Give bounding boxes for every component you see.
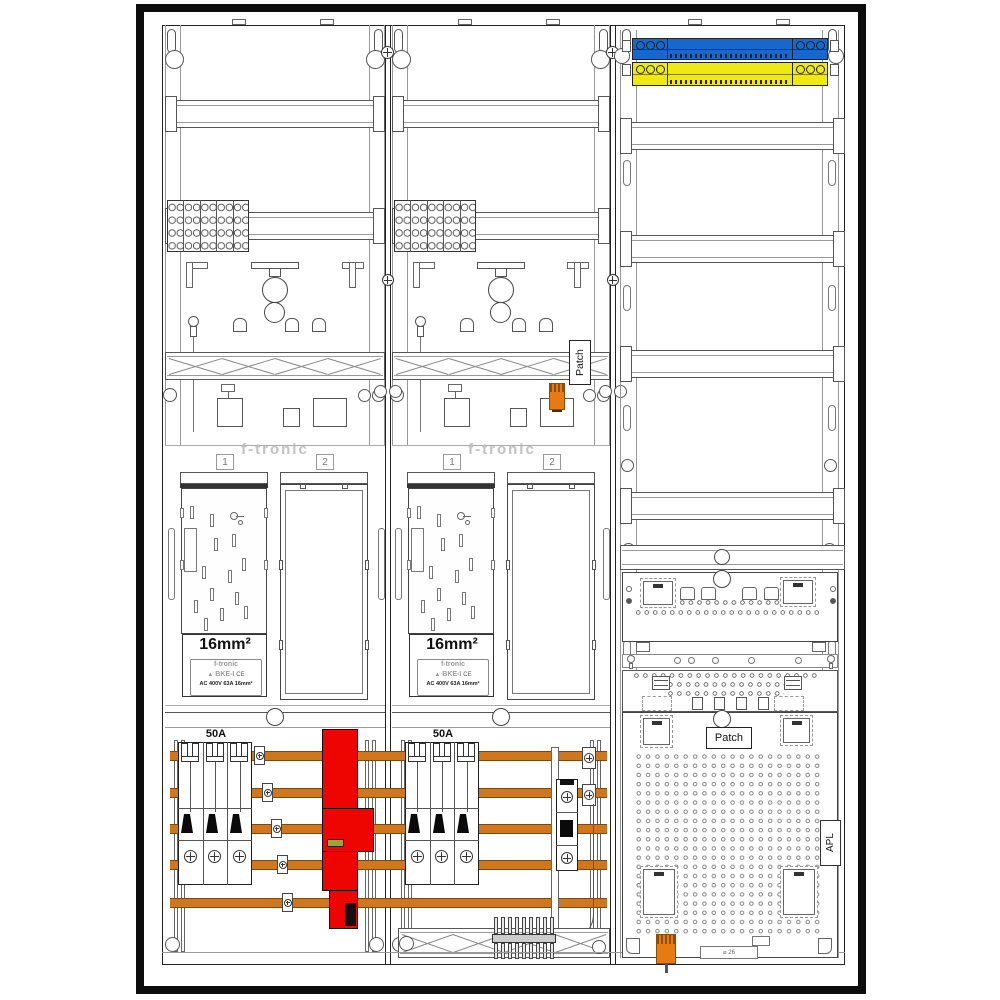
drawing-shape <box>636 41 645 50</box>
perforation <box>395 201 475 251</box>
drawing-shape <box>459 534 463 547</box>
terminal <box>543 917 547 934</box>
drawing-shape <box>656 41 665 50</box>
drawing-shape <box>642 696 672 711</box>
drawing-shape <box>236 516 244 517</box>
drawing-shape <box>512 490 590 694</box>
drawing-shape <box>227 742 228 885</box>
drawing-shape <box>599 385 612 398</box>
drawing-shape <box>373 96 385 132</box>
drawing-shape <box>816 65 825 74</box>
drawing-shape <box>283 408 300 427</box>
terminal <box>515 943 519 959</box>
drawing-shape <box>238 520 243 525</box>
drawing-shape <box>506 640 510 650</box>
meter1-bke-plate: f-tronic ▲ BKE-I CE AC 400V 63A 16mm² <box>190 659 262 696</box>
drawing-shape <box>395 528 402 600</box>
breaker-handle <box>433 814 445 833</box>
drawing-shape <box>612 276 613 284</box>
drawing-shape <box>665 964 668 973</box>
drawing-shape <box>592 560 596 570</box>
drawing-shape <box>369 937 384 952</box>
terminal <box>494 943 498 959</box>
breaker-handle <box>457 814 469 833</box>
drawing-shape <box>165 50 184 69</box>
drawing-shape <box>216 200 217 252</box>
drawing-shape <box>443 200 444 252</box>
drawing-shape <box>652 721 662 725</box>
drawing-shape <box>444 398 470 427</box>
drawing-shape <box>654 685 668 686</box>
drawing-shape <box>264 302 285 323</box>
drawing-shape <box>816 41 825 50</box>
drawing-shape <box>221 384 235 392</box>
wire-loop <box>566 804 594 942</box>
drawing-shape <box>833 231 845 267</box>
terminal <box>543 943 547 959</box>
terminal-strip-rail <box>492 934 556 943</box>
drawing-shape <box>448 384 462 392</box>
meter1-slot1-label: 1 <box>216 454 234 470</box>
drawing-shape <box>183 200 184 252</box>
busbar <box>170 898 607 908</box>
cable-entry-icon <box>233 318 247 332</box>
drawing-shape <box>242 558 246 571</box>
drawing-shape <box>830 598 836 604</box>
drawing-shape <box>828 405 836 431</box>
drawing-shape <box>392 705 610 706</box>
drawing-shape <box>267 791 268 795</box>
breaker-handle <box>408 814 420 833</box>
drawing-shape <box>714 549 730 565</box>
drawing-shape <box>623 160 631 186</box>
drawing-shape <box>387 276 388 284</box>
drawing-shape <box>165 937 180 952</box>
drawing-shape <box>692 697 703 710</box>
drawing-shape <box>627 655 635 663</box>
drawing-shape <box>287 901 288 905</box>
perforation <box>634 609 822 616</box>
drawing-shape <box>217 398 243 427</box>
drawing-shape <box>560 779 574 785</box>
drawing-shape <box>430 742 431 885</box>
drawing-shape <box>190 762 191 812</box>
drawing-shape <box>210 588 214 601</box>
drawing-shape <box>469 558 473 571</box>
drawing-shape <box>455 570 459 583</box>
drawing-shape <box>774 696 804 711</box>
drawing-shape <box>471 606 475 619</box>
drawing-shape <box>442 762 443 812</box>
drawing-shape <box>441 852 442 861</box>
drawing-shape <box>748 657 755 664</box>
drawing-shape <box>163 388 177 402</box>
meter1-slot2-label: 2 <box>316 454 334 470</box>
drawing-shape <box>454 742 455 885</box>
drawing-shape <box>264 508 268 518</box>
drawing-shape <box>264 560 268 570</box>
cabinet-drawing <box>0 0 1000 1000</box>
drawing-shape <box>266 708 284 726</box>
terminal <box>522 943 526 959</box>
drawing-shape <box>190 852 191 861</box>
perforation <box>678 599 782 606</box>
drawing-shape <box>460 200 461 252</box>
drawing-shape <box>282 863 283 867</box>
drawing-shape <box>636 642 650 652</box>
drawing-shape <box>828 160 836 186</box>
drawing-shape <box>210 514 214 527</box>
drawing-shape <box>178 840 252 841</box>
drawing-shape <box>795 657 802 664</box>
meter2-bke-plate: f-tronic ▲ BKE-I CE AC 400V 63A 16mm² <box>417 659 489 696</box>
drawing-shape <box>204 618 208 631</box>
drawing-shape <box>313 398 347 427</box>
rj45-module-ridges <box>550 384 564 392</box>
drawing-shape <box>374 385 387 398</box>
drawing-shape <box>280 472 368 484</box>
cable-entry-icon <box>285 318 299 332</box>
drawing-shape <box>180 508 184 518</box>
top-tab <box>688 19 702 25</box>
drawing-shape <box>620 118 632 154</box>
sls-main-switch-red <box>322 729 358 810</box>
drawing-shape <box>373 208 385 244</box>
drawing-shape <box>653 584 663 588</box>
bke-plate-specs: AC 400V 63A 16mm² <box>418 680 488 689</box>
drawing-shape <box>833 118 845 154</box>
drawing-shape <box>622 40 631 52</box>
drawing-shape <box>202 566 206 579</box>
drawing-shape <box>279 640 283 650</box>
drawing-shape <box>829 663 833 669</box>
drawing-shape <box>622 514 843 515</box>
drawing-shape <box>492 708 510 726</box>
terminal <box>529 943 533 959</box>
drawing-shape <box>417 506 421 519</box>
top-tab <box>232 19 246 25</box>
drawing-shape <box>463 516 471 517</box>
drawing-shape <box>407 472 495 484</box>
drawing-shape <box>190 326 197 337</box>
drawing-shape <box>589 755 590 761</box>
drawing-shape <box>490 302 511 323</box>
drawing-shape <box>411 528 424 572</box>
drawing-shape <box>417 326 424 337</box>
terminal <box>522 917 526 934</box>
drawing-shape <box>466 852 467 861</box>
sls-main-switch-red <box>322 851 358 891</box>
drawing-shape <box>399 936 414 951</box>
drawing-shape <box>365 560 369 570</box>
terminal <box>550 917 554 934</box>
drawing-shape <box>670 54 790 58</box>
drawing-shape <box>407 560 411 570</box>
drawing-shape <box>828 285 836 311</box>
drawing-shape <box>620 545 845 570</box>
drawing-shape <box>167 356 383 357</box>
drawing-shape <box>622 564 843 565</box>
drawing-shape <box>407 508 411 518</box>
drawing-shape <box>488 277 514 303</box>
drawing-shape <box>506 560 510 570</box>
drawing-shape <box>552 410 562 412</box>
drawing-shape <box>405 808 479 809</box>
drawing-shape <box>830 64 839 76</box>
drawing-shape <box>233 200 234 252</box>
drawing-shape <box>467 762 468 812</box>
drawing-shape <box>622 64 631 76</box>
gland-size-label: ⌀ 26 <box>702 947 756 958</box>
drawing-shape <box>793 583 803 587</box>
terminal <box>501 943 505 959</box>
drawing-shape <box>806 65 815 74</box>
drawing-shape <box>657 935 675 944</box>
drawing-shape <box>394 105 608 106</box>
drawing-shape <box>387 48 388 57</box>
drawing-shape <box>824 459 837 472</box>
drawing-shape <box>583 389 596 402</box>
drawing-shape <box>626 938 640 954</box>
drawing-shape <box>622 550 843 551</box>
cable-entry-icon <box>460 318 474 332</box>
drawing-shape <box>262 277 288 303</box>
drawing-shape <box>465 520 470 525</box>
drawing-shape <box>168 528 175 600</box>
drawing-shape <box>228 570 232 583</box>
drawing-shape <box>447 608 451 621</box>
drawing-shape <box>165 705 385 706</box>
drawing-shape <box>495 268 507 277</box>
drawing-shape <box>392 96 404 132</box>
drawing-shape <box>621 459 634 472</box>
drawing-shape <box>796 65 805 74</box>
cable-entry-icon <box>312 318 326 332</box>
meter1-breaker-rating: 50A <box>190 727 242 740</box>
terminal <box>508 943 512 959</box>
drawing-shape <box>830 586 836 592</box>
bke-plate-brand: f-tronic <box>191 660 261 670</box>
drawing-shape <box>437 588 441 601</box>
drawing-shape <box>507 472 595 484</box>
drawing-shape <box>646 41 655 50</box>
drawing-shape <box>427 200 428 252</box>
drawing-shape <box>417 762 418 812</box>
drawing-shape <box>623 405 631 431</box>
drawing-shape <box>186 262 193 288</box>
drawing-shape <box>622 355 843 356</box>
perforation <box>666 690 784 697</box>
drawing-shape <box>792 721 802 725</box>
drawing-shape <box>203 742 204 885</box>
drawing-shape <box>812 642 826 652</box>
drawing-shape <box>190 506 194 519</box>
drawing-shape <box>567 793 568 801</box>
terminal <box>494 917 498 934</box>
drawing-shape <box>636 65 645 74</box>
drawing-shape <box>220 608 224 621</box>
drawing-shape <box>276 827 277 831</box>
hinge-icon <box>713 570 731 588</box>
top-tab <box>458 19 472 25</box>
switch-indicator-led <box>327 839 344 847</box>
switch-window <box>345 903 356 926</box>
bke-plate-brand: f-tronic <box>418 660 488 670</box>
drawing-shape <box>365 640 369 650</box>
drawing-shape <box>462 592 466 605</box>
drawing-shape <box>626 598 632 604</box>
drawing-shape <box>629 663 633 669</box>
drawing-shape <box>784 676 802 690</box>
drawing-shape <box>622 654 838 668</box>
drawing-shape <box>622 127 843 128</box>
drawing-shape <box>622 144 843 145</box>
field-divider <box>610 25 612 965</box>
drawing-shape <box>654 680 668 681</box>
drawing-shape <box>180 560 184 570</box>
drawing-shape <box>405 840 479 841</box>
drawing-shape <box>598 96 610 132</box>
drawing-shape <box>589 792 590 798</box>
drawing-shape <box>279 560 283 570</box>
drawing-shape <box>269 268 281 277</box>
drawing-shape <box>200 200 201 252</box>
drawing-shape <box>796 41 805 50</box>
drawing-shape <box>688 657 695 664</box>
drawing-shape <box>491 560 495 570</box>
drawing-shape <box>620 346 632 382</box>
meter2-breaker-rating: 50A <box>417 727 469 740</box>
perforation <box>666 681 784 688</box>
cable-entry-icon <box>539 318 553 332</box>
top-tab <box>320 19 334 25</box>
breaker-handle <box>181 814 193 833</box>
top-tab <box>776 19 790 25</box>
drawing-shape <box>392 50 411 69</box>
terminal <box>536 943 540 959</box>
drawing-shape <box>652 676 670 690</box>
apl-label: APL <box>820 820 841 866</box>
drawing-shape <box>349 262 356 288</box>
drawing-shape <box>833 346 845 382</box>
terminal <box>501 917 505 934</box>
drawing-shape <box>417 852 418 861</box>
drawing-shape <box>830 40 839 52</box>
drawing-shape <box>510 408 527 427</box>
meter2-slot2-label: 2 <box>543 454 561 470</box>
drawing-shape <box>300 484 306 489</box>
drawing-shape <box>806 41 815 50</box>
drawing-shape <box>712 657 719 664</box>
drawing-shape <box>165 96 177 132</box>
drawing-shape <box>214 852 215 861</box>
drawing-shape <box>598 208 610 244</box>
breaker-handle <box>206 814 218 833</box>
drawing-shape <box>394 122 608 123</box>
drawing-shape <box>437 514 441 527</box>
meter-cabinet-diagram: f-tronic f-tronic 1 2 1 2 16mm² 16mm² f-… <box>0 0 1000 1000</box>
drawing-shape <box>421 600 425 613</box>
drawing-shape <box>794 872 804 876</box>
drawing-shape <box>410 200 411 252</box>
drawing-shape <box>240 762 241 812</box>
terminal <box>515 917 519 934</box>
drawing-shape <box>259 754 260 758</box>
drawing-shape <box>244 606 248 619</box>
cable-entry-icon <box>512 318 526 332</box>
bke-plate-model-row: ▲ BKE-I CE <box>191 670 261 680</box>
field-divider <box>615 25 617 965</box>
drawing-shape <box>786 685 800 686</box>
drawing-shape <box>232 534 236 547</box>
drawing-shape <box>597 740 601 952</box>
drawing-shape <box>429 566 433 579</box>
drawing-shape <box>670 80 790 84</box>
drawing-shape <box>674 657 681 664</box>
drawing-shape <box>736 697 747 710</box>
drawing-shape <box>818 938 832 954</box>
meter2-bke-size-label: 16mm² <box>410 635 494 655</box>
drawing-shape <box>167 375 383 376</box>
drawing-shape <box>413 262 420 288</box>
meter2-slot1-label: 1 <box>443 454 461 470</box>
top-tab <box>546 19 560 25</box>
drawing-shape <box>833 488 845 524</box>
drawing-shape <box>574 262 581 288</box>
drawing-shape <box>184 528 197 572</box>
drawing-shape <box>431 618 435 631</box>
drawing-shape <box>622 372 843 373</box>
drawing-shape <box>592 640 596 650</box>
drawing-shape <box>623 285 631 311</box>
drawing-shape <box>626 586 632 592</box>
drawing-shape <box>167 105 383 106</box>
drawing-shape <box>389 385 402 398</box>
drawing-shape <box>180 472 268 484</box>
drawing-shape <box>215 762 216 812</box>
drawing-shape <box>235 592 239 605</box>
drawing-shape <box>656 65 665 74</box>
drawing-shape <box>167 122 383 123</box>
drawing-shape <box>194 600 198 613</box>
drawing-shape <box>612 48 613 57</box>
drawing-shape <box>622 497 843 498</box>
drawing-shape <box>654 872 664 876</box>
bke-plate-specs: AC 400V 63A 16mm² <box>191 680 261 689</box>
drawing-shape <box>827 655 835 663</box>
drawing-shape <box>714 697 725 710</box>
drawing-shape <box>622 240 843 241</box>
drawing-shape <box>285 490 363 694</box>
patch-label-multimedia-field: Patch <box>706 727 752 749</box>
drawing-shape <box>441 538 445 551</box>
terminal <box>529 917 533 934</box>
terminal <box>536 917 540 934</box>
drawing-shape <box>622 257 843 258</box>
terminal <box>508 917 512 934</box>
drawing-shape <box>491 508 495 518</box>
drawing-shape <box>342 484 348 489</box>
perforation <box>168 201 248 251</box>
drawing-shape <box>239 852 240 861</box>
recycling-icon: ▲ <box>434 672 440 678</box>
terminal <box>550 943 554 959</box>
drawing-shape <box>358 389 371 402</box>
drawing-shape <box>527 484 533 489</box>
drawing-shape <box>214 538 218 551</box>
hinge-icon <box>713 710 731 728</box>
drawing-shape <box>786 680 800 681</box>
